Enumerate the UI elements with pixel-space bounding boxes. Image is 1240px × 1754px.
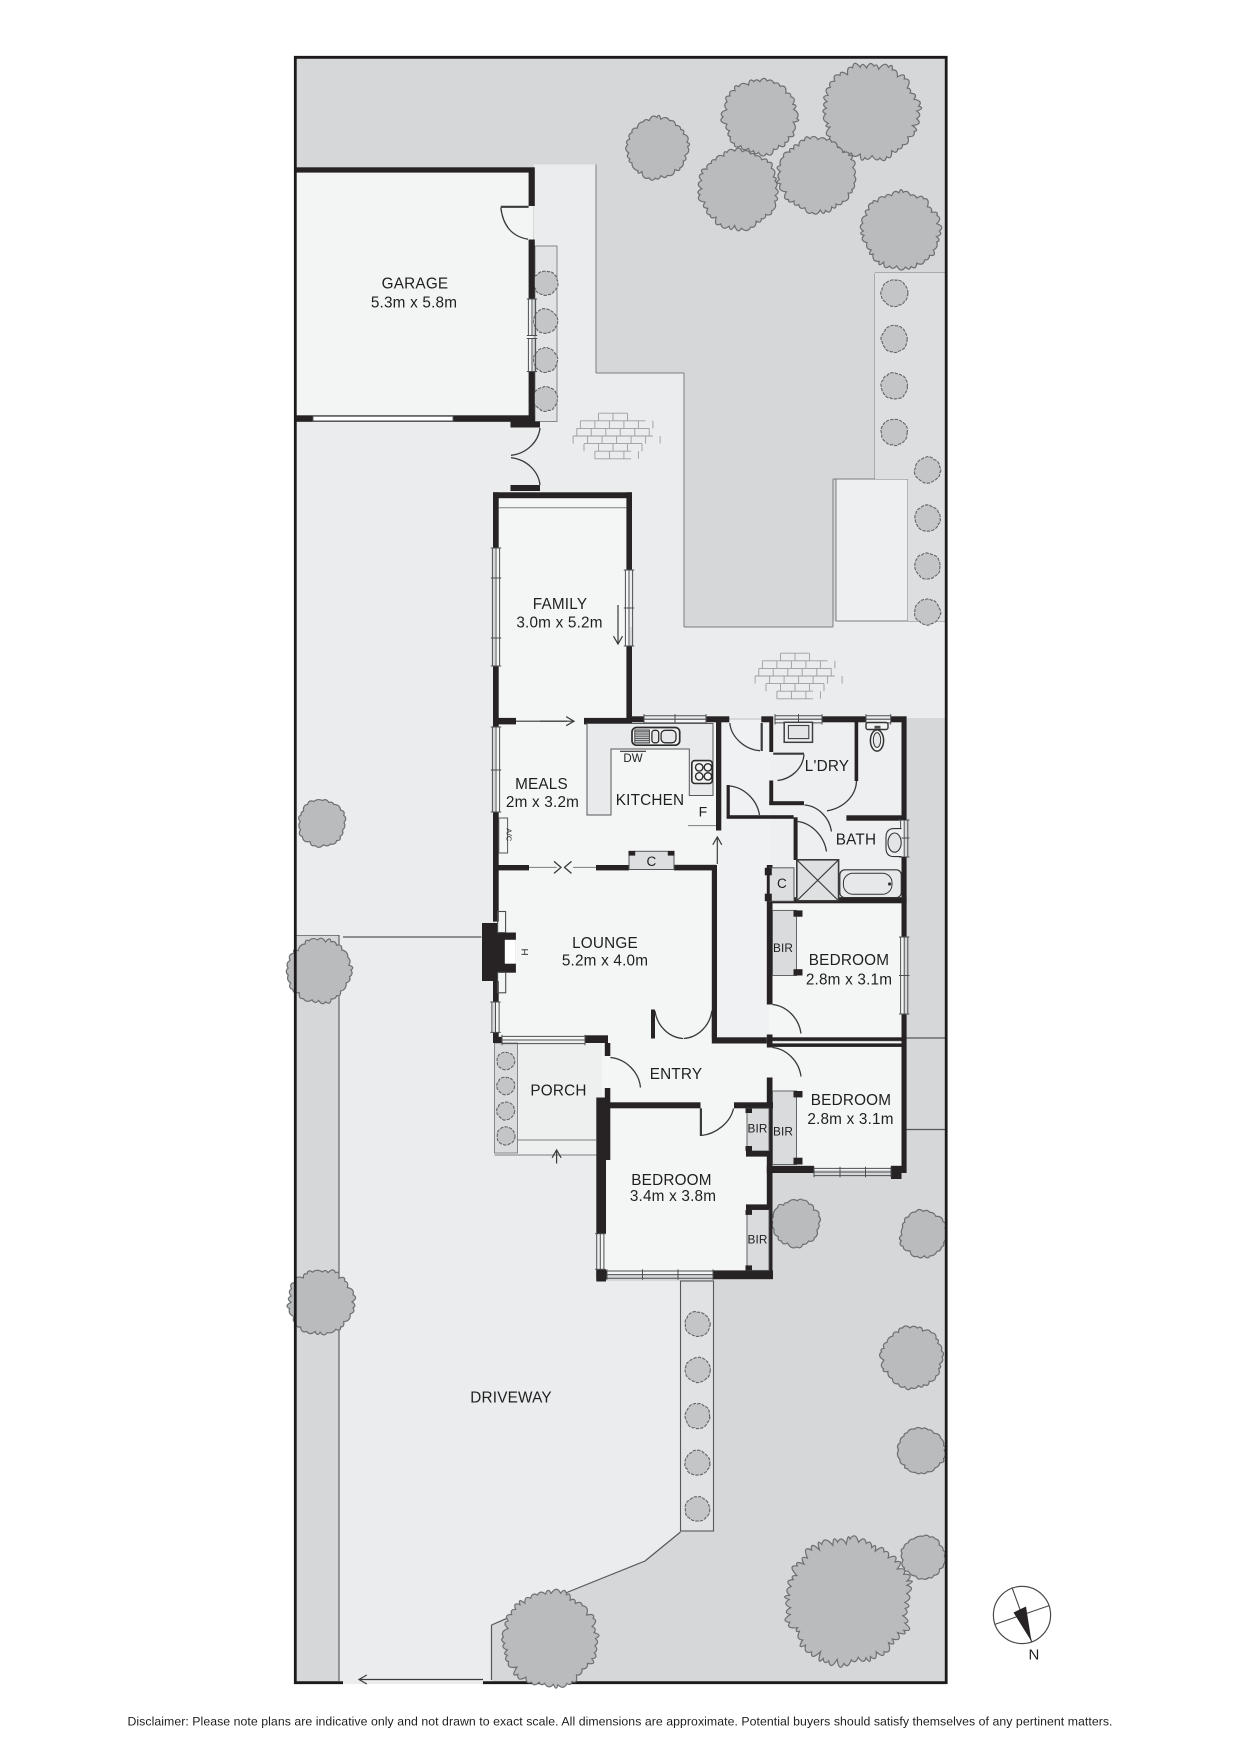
- svg-text:5.3m x 5.8m: 5.3m x 5.8m: [371, 295, 457, 312]
- svg-text:BEDROOM: BEDROOM: [811, 1092, 891, 1109]
- svg-text:3.4m x 3.8m: 3.4m x 3.8m: [630, 1188, 716, 1205]
- svg-text:5.2m x 4.0m: 5.2m x 4.0m: [562, 953, 648, 970]
- svg-text:BIR: BIR: [748, 1122, 768, 1136]
- svg-text:2.8m x 3.1m: 2.8m x 3.1m: [807, 1111, 893, 1128]
- svg-text:2.8m x 3.1m: 2.8m x 3.1m: [806, 972, 892, 989]
- svg-text:F: F: [699, 804, 708, 820]
- svg-text:Disclaimer: Please note plans: Disclaimer: Please note plans are indica…: [127, 1715, 1112, 1729]
- svg-text:A/C: A/C: [504, 828, 513, 841]
- svg-text:DW: DW: [623, 753, 642, 765]
- svg-text:BIR: BIR: [773, 941, 793, 955]
- svg-text:ENTRY: ENTRY: [650, 1066, 703, 1083]
- svg-text:BEDROOM: BEDROOM: [809, 952, 889, 969]
- svg-text:LOUNGE: LOUNGE: [572, 935, 638, 952]
- svg-text:DRIVEWAY: DRIVEWAY: [470, 1390, 552, 1407]
- svg-text:BIR: BIR: [748, 1233, 768, 1247]
- svg-text:BIR: BIR: [773, 1125, 793, 1139]
- svg-text:BEDROOM: BEDROOM: [631, 1172, 711, 1189]
- svg-text:H: H: [519, 949, 530, 956]
- svg-text:C: C: [777, 876, 787, 891]
- svg-text:MEALS: MEALS: [515, 776, 568, 793]
- svg-text:N: N: [1028, 1647, 1039, 1664]
- svg-text:2m x 3.2m: 2m x 3.2m: [506, 794, 579, 811]
- svg-text:C: C: [647, 854, 657, 869]
- svg-text:3.0m x 5.2m: 3.0m x 5.2m: [516, 615, 602, 632]
- svg-text:GARAGE: GARAGE: [382, 276, 449, 293]
- svg-text:KITCHEN: KITCHEN: [616, 792, 685, 809]
- svg-text:BATH: BATH: [836, 832, 876, 849]
- svg-text:FAMILY: FAMILY: [533, 596, 587, 613]
- svg-text:PORCH: PORCH: [530, 1083, 586, 1100]
- svg-text:L'DRY: L'DRY: [805, 758, 849, 775]
